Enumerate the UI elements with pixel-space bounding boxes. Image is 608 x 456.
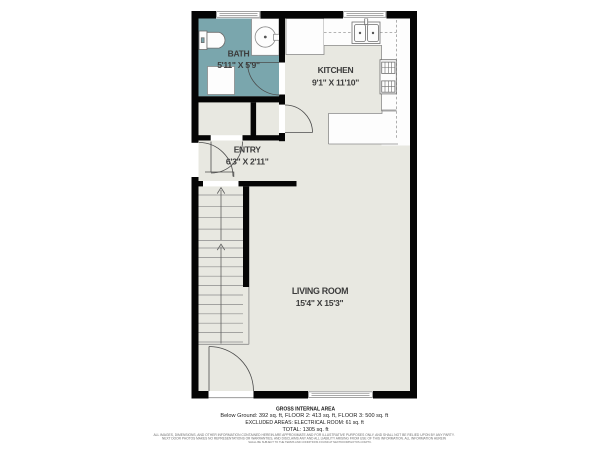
svg-text:EXCLUDED AREAS: ELECTRICAL ROO: EXCLUDED AREAS: ELECTRICAL ROOM: 61 sq. … xyxy=(245,420,364,426)
svg-text:9'1" X 11'10": 9'1" X 11'10" xyxy=(312,78,359,88)
svg-text:GROSS INTERNAL AREA: GROSS INTERNAL AREA xyxy=(276,406,335,412)
svg-text:Below Ground: 392 sq. ft, FLOO: Below Ground: 392 sq. ft, FLOOR 2: 413 s… xyxy=(220,413,388,419)
svg-text:5'11" X 5'9": 5'11" X 5'9" xyxy=(217,60,260,70)
svg-text:ENTRY: ENTRY xyxy=(234,145,262,155)
svg-text:15'4" X 15'3": 15'4" X 15'3" xyxy=(296,298,344,308)
svg-text:SHALL BE SUBJECT TO THE TERMS: SHALL BE SUBJECT TO THE TERMS AND CONDIT… xyxy=(248,440,372,444)
svg-text:BATH: BATH xyxy=(228,48,250,58)
svg-text:KITCHEN: KITCHEN xyxy=(318,65,354,75)
svg-text:NEXT DOOR PHOTOS MAKES NO REPR: NEXT DOOR PHOTOS MAKES NO REPRESENTATION… xyxy=(162,436,447,440)
svg-text:LIVING ROOM: LIVING ROOM xyxy=(292,286,348,296)
